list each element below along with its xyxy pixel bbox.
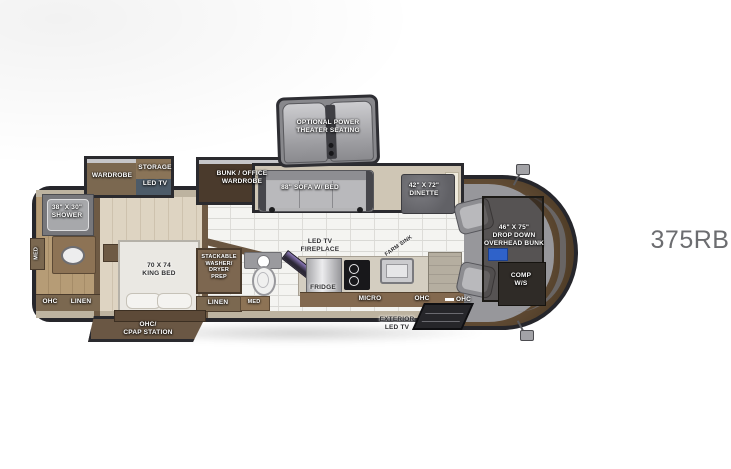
ohc1-label: OHC <box>404 295 440 303</box>
sofa-armrest <box>366 171 373 211</box>
shower-label: 38" X 30" SHOWER <box>44 204 90 220</box>
fridge-label: FRIDGE <box>306 284 340 292</box>
sofa-label: 88" SOFA W/ BED <box>262 184 358 192</box>
mirror-head <box>520 330 534 341</box>
burner <box>349 276 359 286</box>
med-rear-label: MED <box>34 241 41 265</box>
sofa-leg <box>269 207 275 213</box>
sofa-leg <box>357 207 363 213</box>
pillow <box>157 293 192 309</box>
micro-label: MICRO <box>344 295 396 303</box>
burner <box>349 264 359 274</box>
bunk-storage-bin <box>488 248 508 261</box>
led-tv-label: LED TV <box>136 180 174 188</box>
floorplan-canvas: WARDROBE STORAGE LED TV BUNK / OFFICE WA… <box>0 0 731 469</box>
cupholder <box>328 143 333 148</box>
nightstand <box>103 244 119 262</box>
ohc2-label: OHC <box>438 296 478 304</box>
step-tread <box>425 313 463 314</box>
dinette-label: 42" X 72" DINETTE <box>396 182 452 198</box>
fireplace-label: LED TV FIREPLACE <box>290 238 350 254</box>
side-mirror <box>508 164 530 188</box>
cpap-label: OHC/ CPAP STATION <box>102 321 194 337</box>
pillow <box>126 293 161 309</box>
cabinet-dash <box>445 298 454 301</box>
rear-vanity <box>52 236 96 274</box>
theater-label: OPTIONAL POWER THEATER SEATING <box>282 119 374 135</box>
comp-ws-label: COMP W/S <box>500 272 542 288</box>
washer-label: STACKABLE WASHER/ DRYER PREP <box>197 254 241 280</box>
drop-down-bunk-label: 46" X 75" DROP DOWN OVERHEAD BUNK <box>474 224 554 247</box>
storage-label: STORAGE <box>136 164 174 172</box>
cooktop <box>344 260 370 290</box>
ohc-rear-label: OHC <box>36 298 64 306</box>
med-mid-label: MED <box>241 299 267 306</box>
mirror-head <box>516 164 530 175</box>
king-bed-label: 70 X 74 KING BED <box>128 262 190 278</box>
toilet <box>252 266 276 296</box>
floorplan-model-label: 375RB <box>640 226 731 255</box>
step-tread <box>422 321 460 322</box>
vanity-sink <box>61 246 85 265</box>
linen-rear-label: LINEN <box>62 298 100 306</box>
wardrobe-label: WARDROBE <box>86 172 138 180</box>
cupholder <box>329 151 334 156</box>
sink-basin <box>386 264 408 278</box>
side-mirror <box>512 318 534 340</box>
kitchen-sink <box>380 258 414 284</box>
toilet-seat <box>257 272 269 288</box>
linen-mid-label: LINEN <box>197 299 239 307</box>
exterior-tv-label: EXTERIOR LED TV <box>368 316 426 332</box>
